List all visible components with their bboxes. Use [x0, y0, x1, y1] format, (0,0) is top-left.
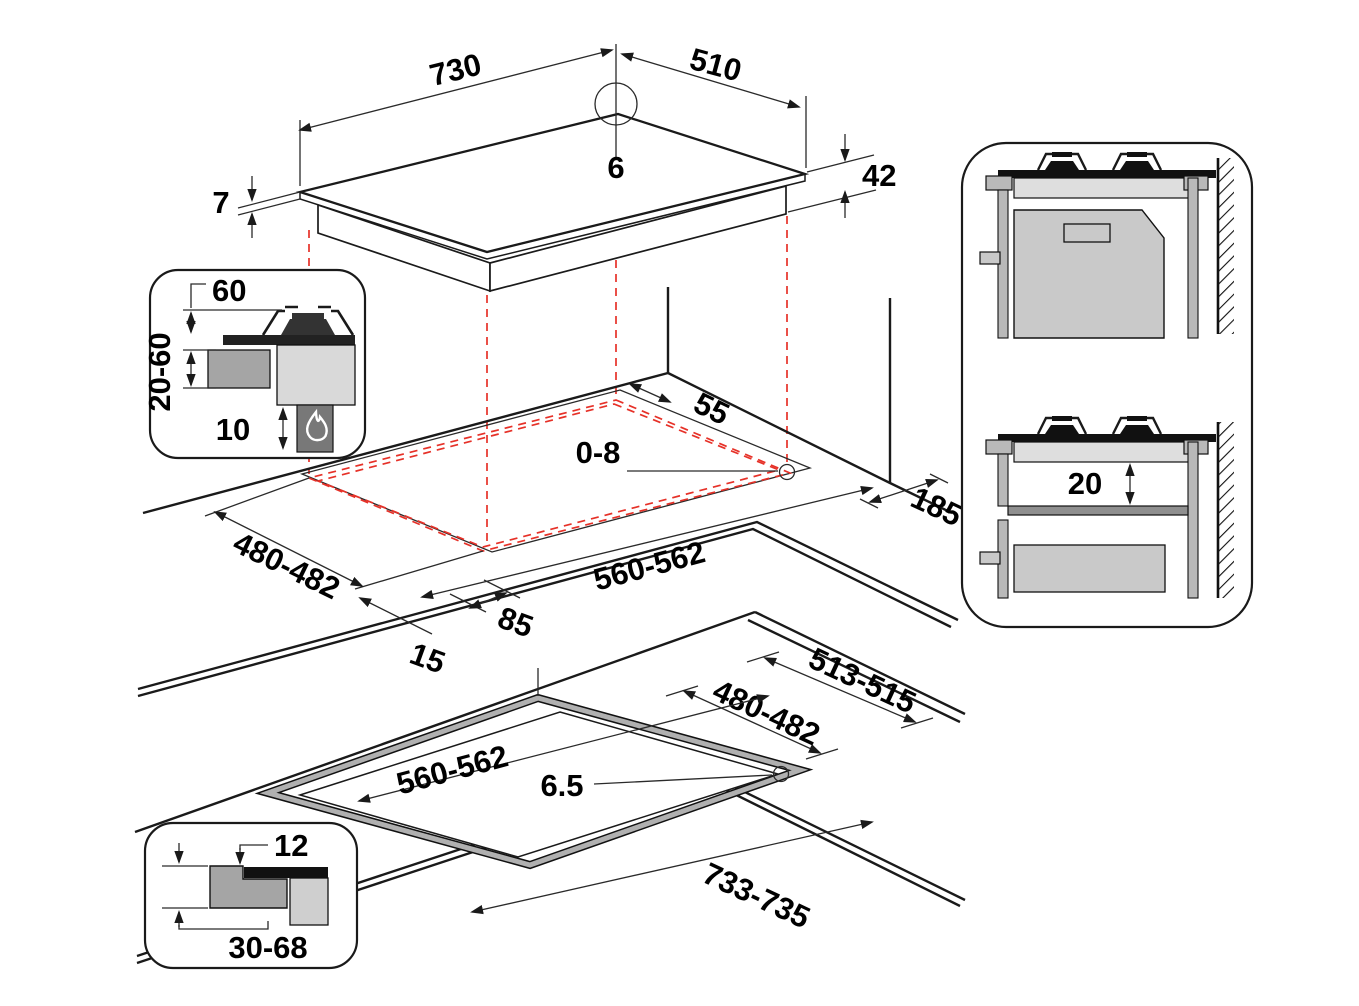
- dim-730: 730: [426, 47, 485, 93]
- dim-15: 15: [405, 636, 449, 681]
- dim-20-60: 20-60: [142, 332, 177, 411]
- dim-20: 20: [1068, 466, 1102, 501]
- clearance-inset: 60 20-60 10: [142, 270, 365, 458]
- dim-0-8: 0-8: [576, 435, 621, 470]
- dim-60: 60: [212, 273, 246, 308]
- dim-85: 85: [493, 600, 537, 645]
- counter-section: [208, 350, 270, 388]
- dim-560-562-mid: 560-562: [590, 534, 709, 597]
- hob-surface-section: [223, 335, 355, 345]
- wall-hatch: [1219, 422, 1234, 598]
- dim-30-68: 30-68: [228, 930, 307, 965]
- dim-6: 6: [607, 150, 624, 185]
- dim-733-735: 733-735: [697, 856, 815, 936]
- dim-7: 7: [212, 185, 229, 220]
- dim-10: 10: [216, 412, 250, 447]
- side-section-panel: 20: [962, 143, 1252, 627]
- dim-480-482-bot: 480-482: [707, 673, 825, 753]
- hob-body-section: [277, 345, 355, 405]
- dim-12: 12: [274, 828, 308, 863]
- dim-480-482-mid: 480-482: [228, 525, 346, 606]
- shelf-section: [1008, 506, 1188, 515]
- wall-hatch: [1219, 158, 1234, 334]
- dim-55: 55: [688, 385, 734, 432]
- hob-body-section-2: [290, 878, 328, 925]
- dim-513-515: 513-515: [803, 641, 921, 721]
- section-above-drawer: 20: [980, 416, 1234, 598]
- hob-edge-section: [244, 867, 328, 878]
- drawer-section: [1014, 545, 1165, 592]
- dim-42: 42: [862, 158, 896, 193]
- dim-510: 510: [686, 41, 745, 88]
- hob-top-view: 730 6 510 7 42: [212, 41, 896, 291]
- flush-inset: 12 30-68: [145, 823, 357, 968]
- dim-6-5: 6.5: [540, 768, 583, 803]
- section-above-oven: [980, 152, 1234, 338]
- installation-diagram: 730 6 510 7 42 55: [0, 0, 1359, 1006]
